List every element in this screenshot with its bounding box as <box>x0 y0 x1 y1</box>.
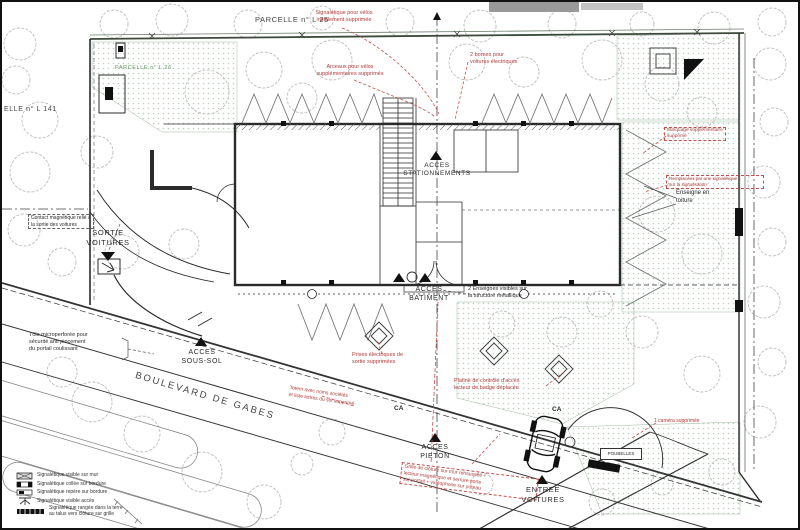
ca-left-label: CA <box>394 405 403 413</box>
pole-sign-icon <box>16 497 34 506</box>
note-signaletique-velos: Signalétique pour vélos initialement sup… <box>298 10 390 24</box>
note-enseigne-toiture: Enseigne en toiture <box>676 190 709 206</box>
batiment-arrow-left-icon <box>393 273 405 282</box>
note-marquage: Marquage supplémentaire supprimé <box>664 127 726 141</box>
note-enseignes-visibles: 2 Enseignes visibles sur la structure mé… <box>468 286 527 300</box>
stair-core <box>383 98 413 206</box>
stationnement-arrow-icon <box>430 151 442 160</box>
acces-sous-sol-label: ACCES SOUS-SOL <box>174 348 230 366</box>
acces-pieton-label: ACCES PIETON <box>410 443 460 461</box>
note-bornes-electriques: 2 bornes pour voitures électriques <box>470 52 517 66</box>
legend-item: Signalétique collée sur bordure <box>16 481 106 488</box>
note-contact-magnetique: Contact magnétique relié à la sortie des… <box>28 214 94 229</box>
acces-batiment-label: ACCES BATIMENT <box>400 285 458 303</box>
pieton-arrow-icon <box>429 433 441 442</box>
legend-text: Signalétique collée sur bordure <box>37 482 106 488</box>
legend-text: Signalétique visible sur mur <box>37 473 98 479</box>
note-tole-microperforee: Tôle microperforée pour sécurité anti pi… <box>29 332 88 353</box>
note-camera: 1 caméra supprimée <box>654 418 700 425</box>
parcel-141-label: ELLE n° L 141 <box>4 105 57 114</box>
note-remplace: Remplacées par une signalétique sur la s… <box>666 175 764 189</box>
poubelles-label: POUBELLES <box>600 448 642 460</box>
acces-stationnements-label: ACCES STATIONNEMENTS <box>398 162 476 179</box>
legend-text: Signalétique rangée dans la terre au tal… <box>49 506 123 518</box>
fence-sign-icon <box>16 508 46 515</box>
legend-item: Signalétique repère sur bordure <box>16 489 107 496</box>
legend-item: Signalétique rangée dans la terre au tal… <box>16 506 123 518</box>
legend-text: Signalétique repère sur bordure <box>37 490 107 496</box>
entree-voitures-label: ENTREE VOITURES <box>512 485 574 505</box>
legend-text: Signalétique visible accès <box>37 499 94 505</box>
note-prises: Prises électriques de sortie supprimées <box>352 352 403 366</box>
legend-item: Signalétique visible sur mur <box>16 472 98 480</box>
sortie-arrow-icon <box>101 252 115 261</box>
kerb-sign-icon <box>16 481 34 488</box>
note-platine: Platine de contrôle d'accès lecteur de b… <box>454 378 520 392</box>
batiment-arrow-right-icon <box>419 273 431 282</box>
site-plan: PARCELLE n° L 25 PARCELLE n° L 26 ELLE n… <box>0 0 800 530</box>
parcel-26-label: PARCELLE n° L 26 <box>115 65 172 72</box>
border-sign-icon <box>16 489 34 496</box>
site-plan-drawing <box>2 2 800 530</box>
wall-sign-icon <box>16 472 34 480</box>
sortie-voitures-label: SORTIE VOITURES <box>78 228 138 248</box>
ca-right-label: CA <box>552 406 561 414</box>
note-arceaux-velos: Arceaux pour vélos supplémentaires suppr… <box>302 64 398 78</box>
